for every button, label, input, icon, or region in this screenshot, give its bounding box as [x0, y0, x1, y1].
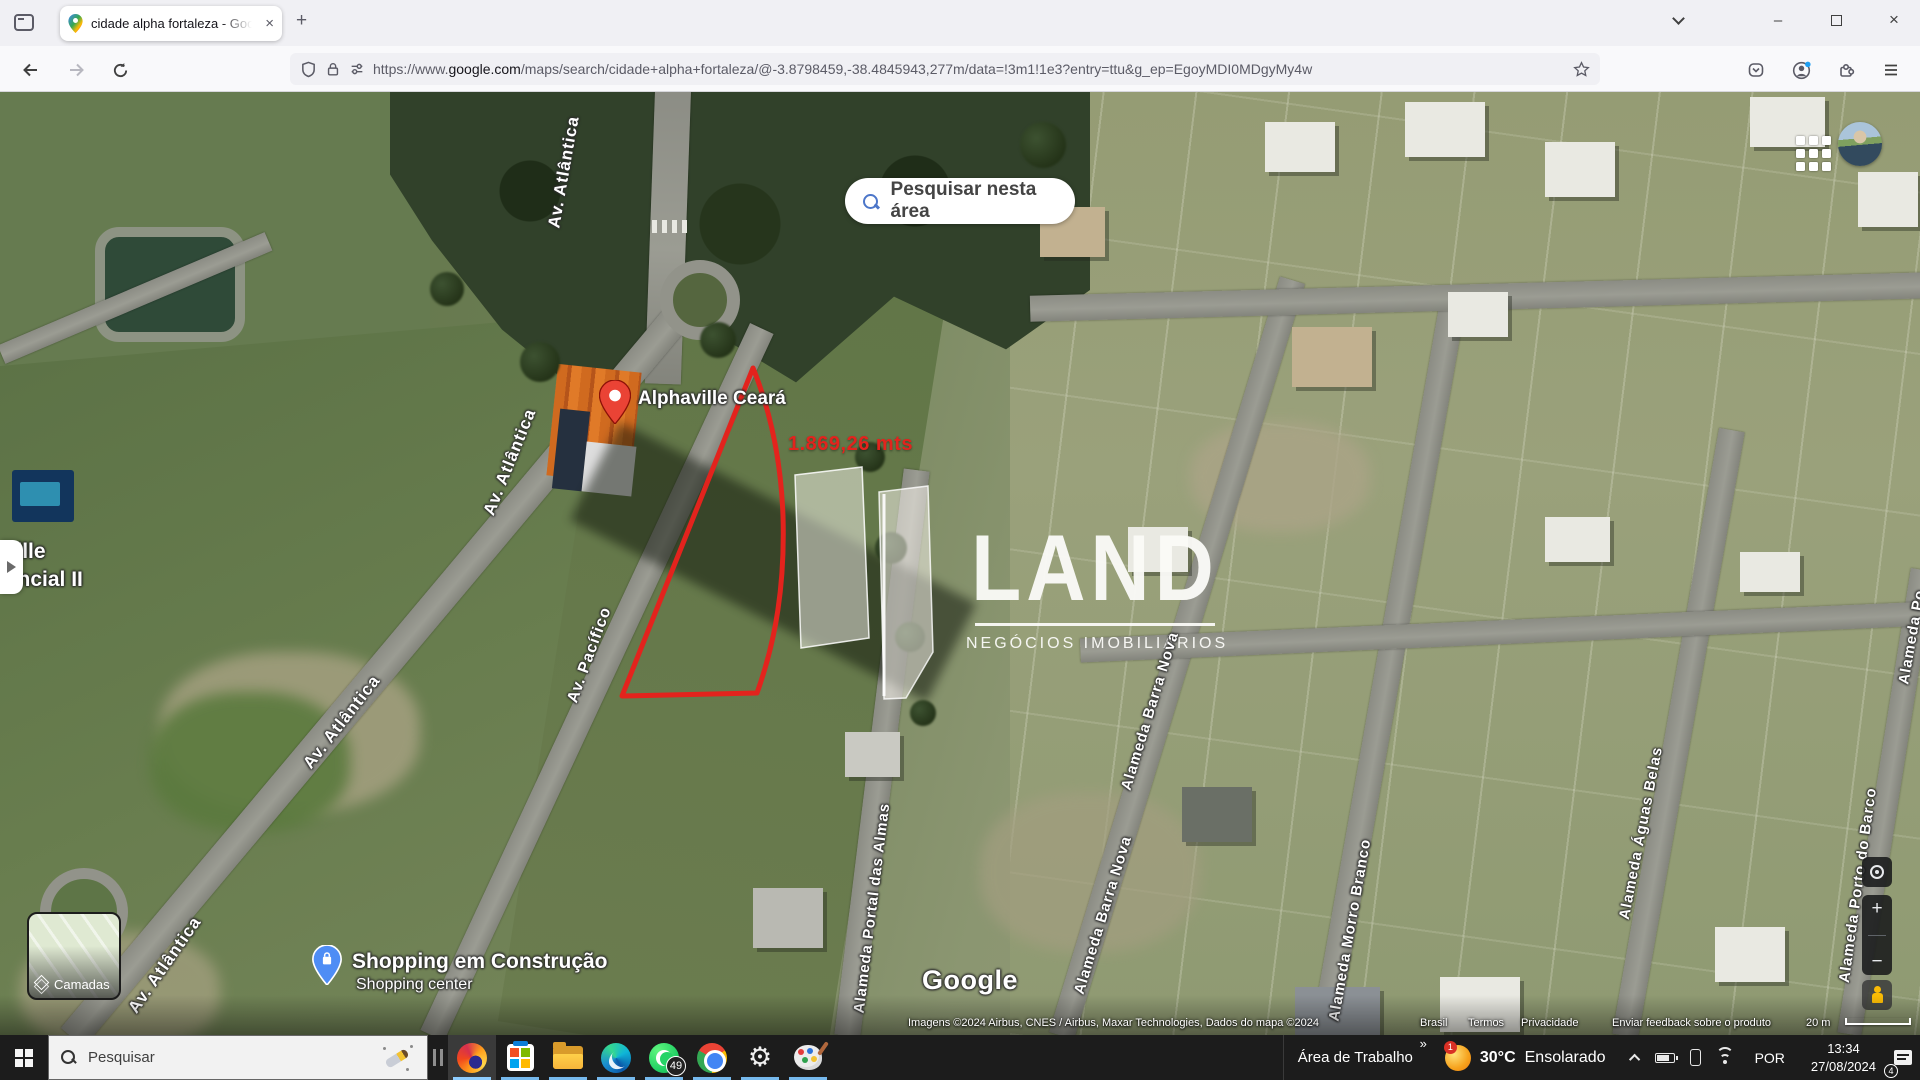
settings-gear-icon: ⚙ [748, 1044, 772, 1071]
bookmark-star-icon[interactable] [1573, 61, 1590, 78]
tree [910, 700, 936, 726]
taskbar-search-box[interactable] [48, 1035, 428, 1080]
google-apps-grid-icon[interactable] [1796, 136, 1831, 171]
measurement-label: 1.869,26 mts [788, 433, 913, 456]
layers-label: Camadas [54, 977, 110, 992]
sun-icon: 1 [1445, 1045, 1471, 1071]
search-icon [863, 194, 878, 209]
clock-date: 27/08/2024 [1811, 1058, 1876, 1076]
scale-label: 20 m [1806, 1017, 1830, 1029]
list-tabs-chevron-icon[interactable] [1650, 0, 1706, 40]
taskbar-chrome-button[interactable] [688, 1035, 736, 1080]
desktop-toolbar[interactable]: Área de Trabalho » [1283, 1035, 1429, 1080]
expand-arrow-icon [7, 561, 22, 573]
google-logo: Google [922, 965, 1018, 996]
zoom-divider [1868, 935, 1886, 936]
menu-hamburger-icon[interactable] [1877, 56, 1905, 84]
search-input[interactable] [88, 1049, 298, 1066]
notification-badge: 4 [1884, 1064, 1898, 1078]
avatar[interactable] [1838, 122, 1882, 166]
notifications-button[interactable]: 4 [1886, 1035, 1920, 1080]
my-location-button[interactable] [1862, 857, 1892, 887]
map-pin-icon[interactable] [599, 380, 631, 424]
tracking-shield-icon[interactable] [300, 61, 317, 78]
battery-icon[interactable] [1655, 1053, 1675, 1063]
land-watermark: LAND NEGÓCIOS IMOBILIÁRIOS [966, 528, 1224, 653]
back-button[interactable] [16, 56, 44, 84]
satellite-map[interactable]: LAND NEGÓCIOS IMOBILIÁRIOS Av. Atlântica… [0, 92, 1920, 1035]
microsoft-store-icon [507, 1044, 534, 1071]
taskbar-store-button[interactable] [496, 1035, 544, 1080]
building [1545, 142, 1615, 197]
layers-icon [35, 977, 48, 990]
zoom-control: + − [1862, 895, 1892, 975]
shopping-pin-icon[interactable] [312, 945, 342, 985]
permissions-icon[interactable] [349, 61, 365, 77]
windows-taskbar: 49 ⚙ Área de Trabalho » 1 30°C Ensolarad… [0, 1035, 1920, 1080]
firefox-view-icon[interactable] [14, 14, 34, 31]
lock-icon[interactable] [325, 61, 341, 77]
whatsapp-badge: 49 [666, 1056, 686, 1076]
weather-widget[interactable]: 1 30°C Ensolarado [1429, 1045, 1622, 1071]
taskbar-firefox-button[interactable] [448, 1035, 496, 1080]
reload-button[interactable] [106, 56, 134, 84]
shopping-label-subtitle: Shopping center [356, 976, 473, 994]
taskbar-whatsapp-button[interactable]: 49 [640, 1035, 688, 1080]
window-minimize-button[interactable]: – [1750, 0, 1806, 40]
paint-icon [794, 1045, 822, 1070]
browser-toolbar: https://www.google.com/maps/search/cidad… [0, 46, 1920, 92]
attribution-link-privacidade[interactable]: Privacidade [1521, 1017, 1578, 1029]
language-indicator[interactable]: POR [1749, 1050, 1791, 1066]
search-this-area-button[interactable]: Pesquisar nesta área [845, 178, 1075, 224]
building [753, 888, 823, 948]
taskbar-explorer-button[interactable] [544, 1035, 592, 1080]
browser-tab[interactable]: cidade alpha fortaleza - Googl × [60, 6, 282, 41]
tree [430, 272, 464, 306]
scale-bar [1845, 1018, 1911, 1025]
edge-icon [601, 1043, 631, 1073]
attribution-link-feedback[interactable]: Enviar feedback sobre o produto [1612, 1017, 1771, 1029]
bottom-gradient [0, 995, 1920, 1035]
clock-time: 13:34 [1811, 1040, 1876, 1058]
taskbar-paint-button[interactable] [784, 1035, 832, 1080]
watermark-divider [975, 623, 1215, 626]
file-explorer-icon [553, 1046, 583, 1069]
building [1545, 517, 1610, 562]
account-icon[interactable] [1787, 56, 1815, 84]
building [1292, 327, 1372, 387]
my-location-icon [1870, 865, 1884, 879]
marker-label[interactable]: Alphaville Ceará [638, 388, 786, 410]
tree [1020, 122, 1066, 168]
start-button[interactable] [0, 1035, 48, 1080]
watermark-title: LAND [971, 522, 1219, 615]
side-panel-expand-button[interactable] [0, 540, 23, 594]
chrome-icon [697, 1043, 727, 1073]
browser-tab-bar: cidade alpha fortaleza - Googl × + – × [0, 0, 1920, 46]
desktop-toolbar-label: Área de Trabalho [1298, 1049, 1413, 1066]
weather-badge: 1 [1444, 1041, 1457, 1054]
building [1182, 787, 1252, 842]
tray-chevron-icon[interactable] [1629, 1053, 1640, 1064]
taskbar-edge-button[interactable] [592, 1035, 640, 1080]
pocket-icon[interactable] [1742, 56, 1770, 84]
crosswalk [652, 220, 690, 233]
building [1448, 292, 1508, 337]
search-icon [61, 1050, 76, 1065]
zoom-out-button[interactable]: − [1871, 952, 1882, 971]
tree [875, 532, 907, 564]
building [1405, 102, 1485, 157]
tab-close-icon[interactable]: × [265, 15, 274, 32]
attribution-link-brasil[interactable]: Brasil [1420, 1017, 1448, 1029]
notifications-icon [1894, 1050, 1912, 1065]
building [1715, 927, 1785, 982]
search-highlights-icon [383, 1045, 413, 1071]
window-maximize-button[interactable] [1808, 0, 1864, 40]
tree [895, 622, 925, 652]
system-tray: POR [1622, 1049, 1801, 1066]
taskbar-settings-button[interactable]: ⚙ [736, 1035, 784, 1080]
wifi-icon[interactable] [1716, 1051, 1734, 1065]
new-tab-button[interactable]: + [296, 10, 307, 32]
zoom-in-button[interactable]: + [1871, 899, 1882, 918]
toolbar-expand-icon[interactable]: » [1420, 1036, 1427, 1051]
tab-title: cidade alpha fortaleza - Googl [91, 16, 257, 31]
firefox-icon [457, 1043, 487, 1073]
weather-condition: Ensolarado [1525, 1049, 1606, 1067]
url-bar[interactable]: https://www.google.com/maps/search/cidad… [290, 53, 1600, 85]
layers-button[interactable]: Camadas [27, 912, 121, 1000]
extensions-puzzle-icon[interactable] [1832, 56, 1860, 84]
taskbar-clock[interactable]: 13:34 27/08/2024 [1801, 1040, 1886, 1075]
tree [520, 342, 560, 382]
window-close-button[interactable]: × [1866, 0, 1920, 40]
tree [700, 322, 736, 358]
building [845, 732, 900, 777]
forward-button[interactable] [63, 56, 91, 84]
taskbar-right: Área de Trabalho » 1 30°C Ensolarado POR… [1283, 1035, 1920, 1080]
attribution-link-termos[interactable]: Termos [1468, 1017, 1504, 1029]
shopping-label-title[interactable]: Shopping em Construção [352, 950, 608, 974]
url-text: https://www.google.com/maps/search/cidad… [373, 61, 1565, 77]
watermark-subtitle: NEGÓCIOS IMOBILIÁRIOS [966, 635, 1224, 653]
windows-logo-icon [15, 1049, 33, 1067]
pool [20, 482, 60, 506]
google-maps-favicon [68, 14, 83, 33]
building [1265, 122, 1335, 172]
search-this-area-label: Pesquisar nesta área [891, 179, 1075, 223]
taskbar-separator-icon [428, 1035, 448, 1080]
phone-icon[interactable] [1690, 1049, 1701, 1066]
weather-temp: 30°C [1480, 1049, 1516, 1067]
imagery-attribution: Imagens ©2024 Airbus, CNES / Airbus, Max… [908, 1017, 1319, 1029]
building [1858, 172, 1918, 227]
building [1740, 552, 1800, 592]
